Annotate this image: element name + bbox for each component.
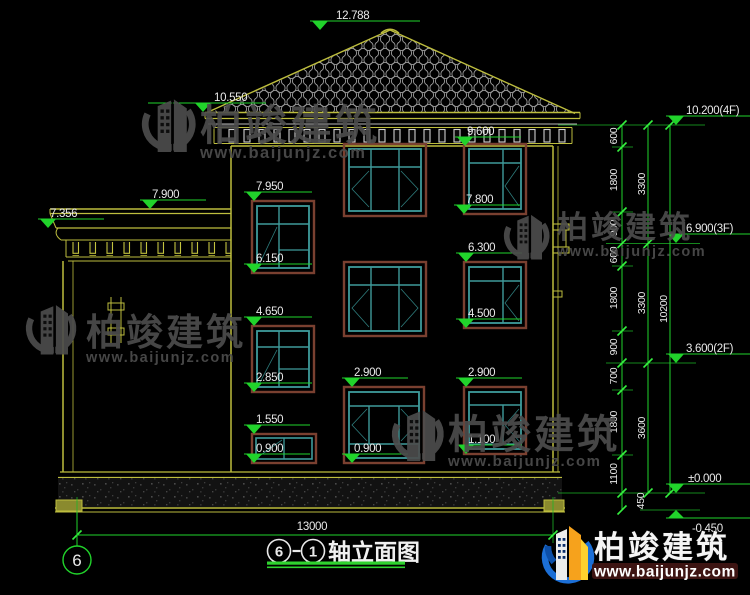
dim-label: 3600 (636, 416, 648, 439)
marker-label: 4.500 (468, 308, 495, 320)
elevation-marker-porch-top: 7.900 (140, 189, 206, 209)
elevation-marker-ridge: 12.788 (310, 10, 420, 30)
dim-label: 10200 (658, 295, 670, 323)
logo-brand-text: 柏竣建筑 (594, 530, 730, 565)
marker-label: 7.356 (50, 208, 77, 220)
site-logo: 柏竣建筑 www.baijunjz.com (545, 526, 738, 581)
elevation-marker-floor2: 3.600(2F) (666, 343, 750, 363)
marker-label: 1.550 (256, 414, 283, 426)
watermark-left: 柏竣建筑 www.baijunjz.com (29, 305, 246, 366)
marker-label: 2.900 (354, 367, 381, 379)
marker-label: 9.600 (467, 126, 494, 138)
elevation-marker-w1l-sill: 6.150 (244, 253, 312, 273)
title-axis-end: 1 (309, 544, 317, 561)
marker-label: 0.900 (256, 443, 283, 455)
marker-label: 3.600(2F) (686, 343, 734, 355)
title-axis-start: 6 (275, 544, 283, 561)
plinth-ground (55, 472, 565, 512)
watermark-bottom: 柏竣建筑 www.baijunjz.com (395, 410, 620, 470)
elevation-marker-w2r-sill: 4.500 (456, 308, 522, 328)
watermark-brand: 柏竣建筑 (448, 413, 620, 457)
dim-label: 700 (608, 367, 620, 384)
marker-label: 7.950 (256, 181, 283, 193)
title-underline-thick (267, 562, 405, 565)
marker-label: 6.900(3F) (686, 223, 734, 235)
marker-label: 4.650 (256, 306, 283, 318)
marker-label: 6.150 (256, 253, 283, 265)
watermark-right: 柏竣建筑 www.baijunjz.com (507, 210, 706, 260)
watermark-url: www.baijunjz.com (556, 244, 706, 260)
watermark-url: www.baijunjz.com (447, 453, 601, 470)
grid-bubble-6: 6 (63, 512, 91, 574)
window-2f-middle (344, 262, 426, 336)
watermark-brand: 柏竣建筑 (200, 102, 380, 149)
drawing-title: 6 1 轴立面图 (267, 539, 420, 568)
dim-label: 600 (608, 127, 620, 144)
elevation-marker-w3m-head: 2.900 (342, 367, 408, 387)
logo-url-text: www.baijunjz.com (593, 564, 736, 581)
bottom-dim-label: 13000 (297, 521, 327, 533)
column-base-right (544, 500, 564, 511)
dim-label: 1100 (608, 463, 620, 485)
marker-label: 10.200(4F) (686, 105, 740, 117)
dim-label: 450 (635, 492, 647, 509)
elevation-marker-w2l-head: 4.650 (244, 306, 312, 326)
dim-label: 1800 (608, 168, 620, 191)
elevation-marker-w3r-head: 2.900 (456, 367, 522, 387)
marker-label: ±0.000 (688, 473, 721, 485)
elevation-marker-porch-soffit: 7.356 (38, 208, 104, 228)
marker-label: 7.800 (466, 194, 493, 206)
elevation-marker-ground: ±0.000 (666, 473, 750, 493)
marker-label: 6.300 (468, 242, 495, 254)
elevation-drawing-canvas: 12.788 10.550 7.900 7.356 9.600 7.950 6.… (0, 0, 750, 595)
dim-label: 3300 (636, 291, 648, 314)
title-text: 轴立面图 (328, 539, 420, 565)
marker-label: 12.788 (336, 10, 369, 22)
site-logo-icon (545, 526, 591, 580)
watermark-url: www.baijunjz.com (85, 350, 235, 366)
column-base-left (56, 500, 82, 511)
dim-label: 1800 (608, 286, 620, 309)
elevation-marker-w1l-head: 7.950 (244, 181, 312, 201)
title-underline-thin (267, 567, 405, 569)
watermark-brand: 柏竣建筑 (557, 210, 693, 245)
porch-dentil-band (66, 242, 231, 256)
ground-hatch (58, 478, 562, 507)
elevation-marker-w2l-sill: 2.850 (244, 372, 312, 392)
marker-label: 7.900 (152, 189, 179, 201)
elevation-marker-w3l-sill: 0.900 (244, 443, 310, 463)
marker-label: 2.850 (256, 372, 283, 384)
grid-bubble-label: 6 (72, 551, 81, 570)
dim-label: 900 (608, 338, 620, 355)
watermark-url: www.baijunjz.com (199, 144, 366, 162)
watermark-brand: 柏竣建筑 (86, 311, 246, 353)
elevation-marker-w3l-head: 1.550 (244, 414, 310, 434)
roof-tile-hatch (211, 30, 572, 113)
marker-label: 2.900 (468, 367, 495, 379)
gutter-curl (56, 228, 61, 240)
dim-label: 3300 (636, 172, 648, 195)
marker-label: 0.900 (354, 443, 381, 455)
watermark-top: 柏竣建筑 www.baijunjz.com (145, 99, 380, 162)
elevation-marker-floor4: 10.200(4F) (666, 105, 750, 125)
